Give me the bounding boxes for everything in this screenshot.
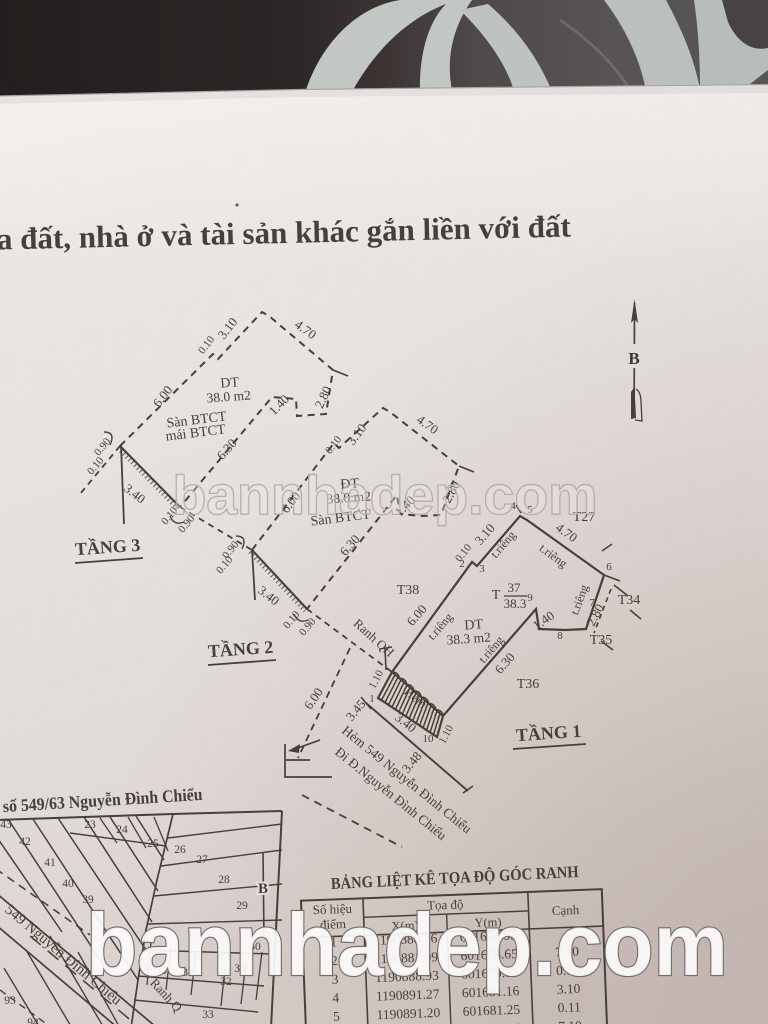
svg-text:27: 27 (196, 854, 208, 866)
svg-text:40: 40 (62, 878, 74, 890)
svg-text:5: 5 (333, 1009, 341, 1024)
svg-text:24: 24 (116, 824, 128, 836)
svg-text:T34: T34 (618, 593, 641, 608)
svg-text:43: 43 (0, 819, 12, 831)
svg-text:3: 3 (479, 563, 485, 575)
svg-text:8: 8 (557, 630, 563, 642)
svg-text:T35: T35 (590, 633, 613, 648)
svg-text:23: 23 (84, 819, 96, 831)
svg-text:38.0 m2: 38.0 m2 (206, 387, 251, 405)
svg-text:T: T (492, 588, 501, 603)
svg-text:28: 28 (218, 874, 230, 886)
svg-text:93: 93 (4, 995, 16, 1007)
svg-text:bannhadep.com: bannhadep.com (173, 464, 598, 526)
svg-text:9: 9 (527, 592, 533, 604)
svg-text:38.3 m2: 38.3 m2 (446, 629, 491, 647)
svg-text:10: 10 (423, 733, 435, 745)
svg-text:T36: T36 (517, 677, 540, 692)
svg-text:25: 25 (147, 838, 159, 850)
svg-text:94: 94 (27, 1017, 39, 1024)
svg-text:38.3: 38.3 (504, 596, 527, 611)
svg-text:41: 41 (44, 857, 56, 869)
svg-text:7.10: 7.10 (558, 1018, 582, 1024)
svg-text:bannhadep.com: bannhadep.com (86, 895, 728, 994)
svg-text:37: 37 (508, 580, 522, 595)
svg-text:0.11: 0.11 (557, 999, 581, 1015)
svg-text:7: 7 (589, 597, 595, 609)
svg-text:42: 42 (19, 836, 31, 848)
svg-text:T38: T38 (397, 583, 420, 598)
svg-text:2: 2 (459, 558, 465, 570)
svg-text:B: B (628, 349, 639, 368)
svg-text:1: 1 (369, 693, 375, 705)
svg-text:1190891.20: 1190891.20 (376, 1005, 440, 1022)
svg-text:26: 26 (174, 844, 186, 856)
svg-text:33: 33 (202, 1009, 214, 1021)
svg-text:601681.25: 601681.25 (462, 1002, 520, 1019)
svg-text:6: 6 (606, 561, 612, 573)
